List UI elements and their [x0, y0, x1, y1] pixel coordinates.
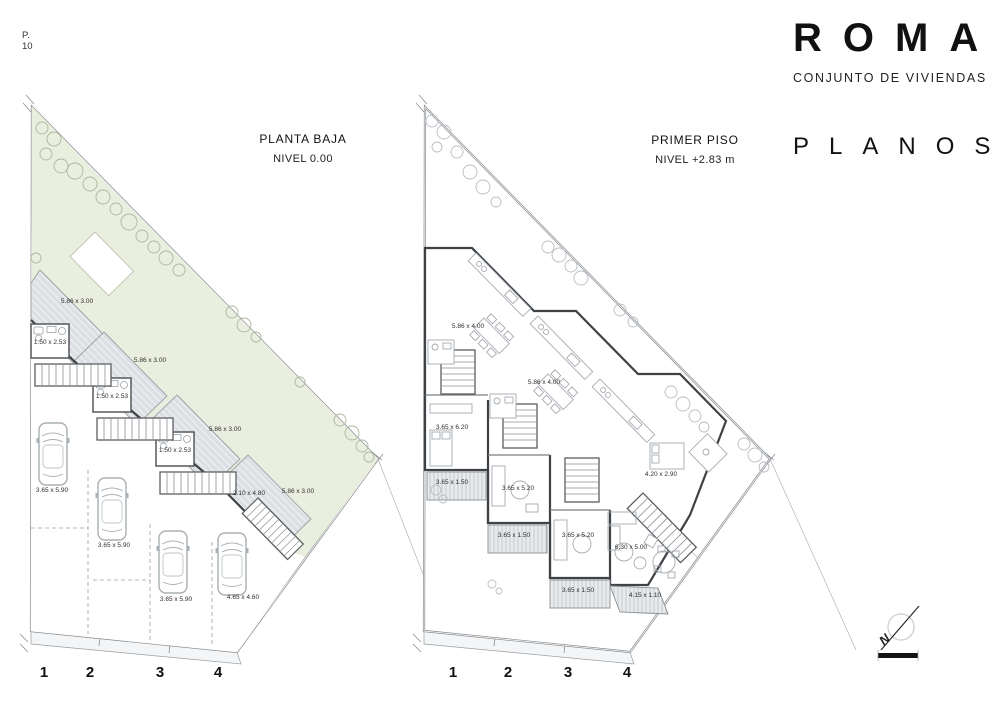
dimension-label: 4.15 x 1.10 [629, 592, 662, 599]
dimension-label: 4.65 x 4.60 [227, 594, 260, 601]
balcony [550, 580, 610, 608]
dimension-label: 5.86 x 3.00 [209, 426, 242, 433]
corner-tick [413, 634, 421, 652]
north-arrow: N [876, 606, 919, 650]
bathroom [490, 394, 516, 418]
dimension-label: 3.65 x 5.20 [502, 485, 535, 492]
dimension-label: 1.50 x 2.53 [34, 339, 67, 346]
balcony [427, 472, 486, 500]
grid-number: 1 [40, 664, 48, 681]
grid-number: 3 [156, 664, 164, 681]
grid-number: 4 [623, 664, 632, 681]
stair [160, 472, 236, 494]
primer-piso-plan: 5.86 x 4.00 5.86 x 4.00 3.65 x 6.20 3.65… [413, 95, 856, 681]
stair [565, 458, 599, 502]
bathroom [428, 340, 454, 364]
plans-drawing: 5.86 x 3.00 5.86 x 3.00 5.86 x 3.00 5.86… [0, 0, 1000, 707]
dimension-label: 5.86 x 4.00 [452, 323, 485, 330]
balcony [488, 525, 547, 553]
grid-number: 4 [214, 664, 223, 681]
survey-line [770, 459, 856, 650]
dimension-label: 6.30 x 5.00 [615, 544, 648, 551]
dimension-label: 5.86 x 4.00 [528, 379, 561, 386]
grid-number: 2 [504, 664, 512, 681]
car [216, 533, 249, 595]
dimension-label: 3.65 x 1.50 [562, 587, 595, 594]
balcony [610, 586, 668, 614]
dimension-label: 3.65 x 1.50 [436, 479, 469, 486]
scale-bar [878, 650, 918, 661]
dimension-label: 3.65 x 5.90 [160, 596, 193, 603]
dimension-label: 5.86 x 3.00 [61, 298, 94, 305]
grid-number: 1 [449, 664, 457, 681]
dimension-label: 1.50 x 2.53 [159, 447, 192, 454]
dimension-label: 3.65 x 5.20 [562, 532, 595, 539]
stair [35, 364, 111, 386]
dimension-label: 5.86 x 3.00 [134, 357, 167, 364]
car [96, 478, 129, 540]
grid-number: 2 [86, 664, 94, 681]
car [37, 423, 70, 485]
car [157, 531, 190, 593]
dimension-label: 1.50 x 2.53 [96, 393, 129, 400]
dimension-label: 4.20 x 2.90 [645, 471, 678, 478]
stair [97, 418, 173, 440]
planta-baja-plan: 5.86 x 3.00 5.86 x 3.00 5.86 x 3.00 5.86… [20, 95, 441, 681]
corner-tick [20, 634, 28, 652]
dimension-label: 2.10 x 4.80 [233, 490, 266, 497]
dimension-label: 3.65 x 5.90 [98, 542, 131, 549]
dimension-label: 3.65 x 6.20 [436, 424, 469, 431]
dimension-label: 3.65 x 1.50 [498, 532, 531, 539]
dimension-label: 5.86 x 3.00 [282, 488, 315, 495]
dimension-label: 3.65 x 5.90 [36, 487, 69, 494]
grid-number: 3 [564, 664, 572, 681]
drawing-sheet: P. 10 ROMA CONJUNTO DE VIVIENDAS PLANOS … [0, 0, 1000, 707]
